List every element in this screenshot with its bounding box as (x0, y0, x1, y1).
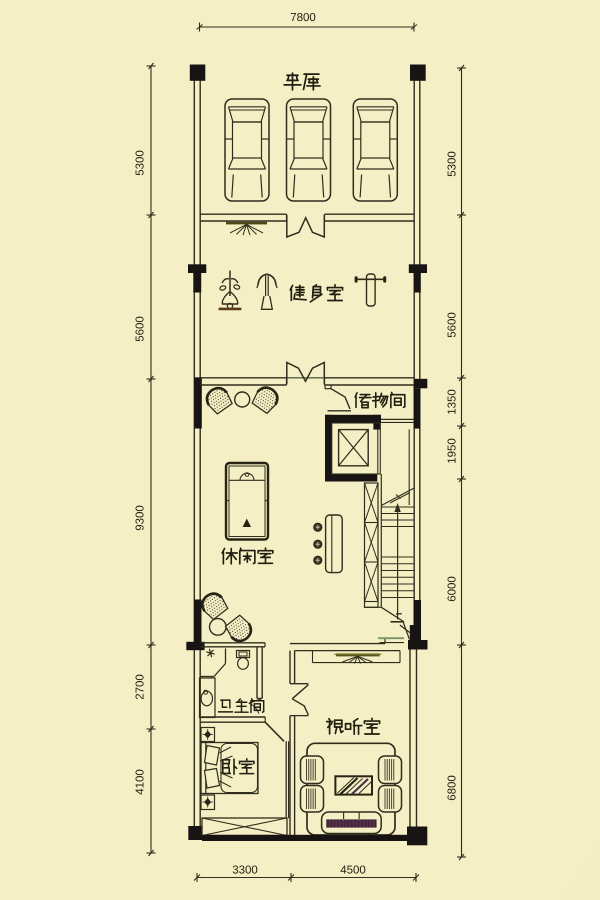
svg-text:5600: 5600 (135, 316, 147, 342)
svg-text:5300: 5300 (447, 151, 459, 177)
svg-text:6800: 6800 (447, 775, 459, 801)
svg-text:1950: 1950 (447, 438, 459, 464)
svg-text:7800: 7800 (290, 12, 316, 24)
svg-text:1350: 1350 (447, 389, 459, 415)
svg-text:5300: 5300 (135, 150, 147, 176)
svg-text:4100: 4100 (135, 769, 147, 795)
svg-text:6000: 6000 (447, 576, 459, 602)
svg-text:3300: 3300 (232, 865, 258, 877)
svg-text:5600: 5600 (447, 312, 459, 338)
svg-text:2700: 2700 (135, 674, 147, 700)
svg-text:4500: 4500 (340, 865, 366, 877)
svg-text:9300: 9300 (135, 505, 147, 531)
